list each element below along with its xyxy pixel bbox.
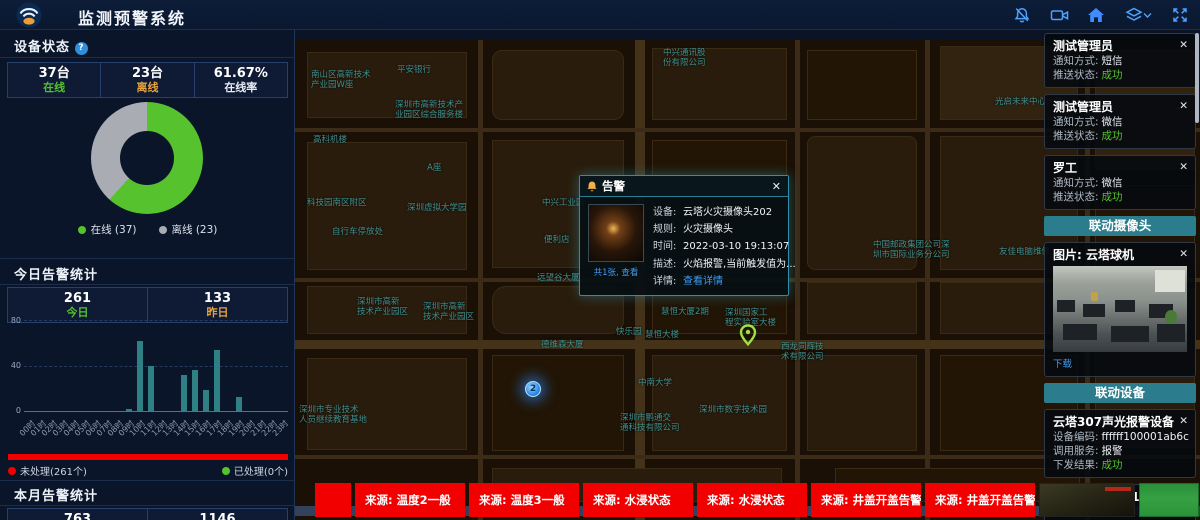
donut-legend: 在线 (37) 离线 (23) [0,222,295,237]
map-block [807,355,917,451]
ticker-alarm-item[interactable]: 来源: 井盖开盖告警 [811,483,921,517]
map-place-label: 慧恒大楼 [645,330,679,340]
alarm-snapshot-image[interactable] [588,204,644,262]
map-place-label: 中国邮政集团公司深 圳市国际业务分公司 [873,240,950,260]
legend-item-offline[interactable]: 离线 (23) [159,222,218,237]
right-notification-panel: ✕ 测试管理员 通知方式:短信 推送状态:成功 ✕ 测试管理员 通知方式:微信 … [1044,30,1196,520]
map-place-label: 科技园南区附区 [307,198,367,208]
unprocessed-label: 未处理(261个) [8,463,87,478]
camera-snapshot-card: ✕ 图片: 云塔球机 下载 [1044,242,1196,377]
view-detail-link[interactable]: 查看详情 [683,273,723,290]
help-icon[interactable]: ? [75,42,88,55]
close-icon[interactable]: ✕ [1179,248,1188,260]
bar-09时 [126,409,132,411]
bar-14时 [181,375,187,411]
notification-card: ✕ 测试管理员 通知方式:微信 推送状态:成功 [1044,94,1196,149]
device-status-donut-chart [91,102,203,214]
device-status-stats: 37台 在线 23台 离线 61.67% 在线率 [7,62,288,98]
close-icon[interactable]: ✕ [1179,39,1188,51]
bar-15时 [192,370,198,411]
today-alarm-bar-chart: 80 40 0 00时01时02时03时04时05时06时07时08时09时10… [8,318,290,470]
gridline [24,366,288,367]
alarm-bell-icon [587,181,597,192]
map-place-label: 深圳市高新 技术产业园区 [423,302,474,322]
map-cluster-marker[interactable]: 2 [525,381,541,397]
map-location-pin-icon[interactable] [739,324,757,350]
map-place-label: 深圳市数字技术园 [699,405,767,415]
notification-card: ✕ 测试管理员 通知方式:短信 推送状态:成功 [1044,33,1196,88]
notification-card: ✕ 罗工 通知方式:微信 推送状态:成功 [1044,155,1196,210]
alarm-photo-links[interactable]: 共1张, 查看 [588,266,644,278]
today-alarm-title: 今日告警统计 [14,264,98,283]
ticker-alarm-item[interactable]: 来源: 水浸状态 [697,483,807,517]
processed-label: 已处理(0个) [222,463,288,478]
legend-dot [159,226,167,234]
alarm-field-detail: 详情: 查看详情 [653,273,796,290]
green-dot-icon [222,467,230,475]
divider [0,480,295,481]
month-alarm-stats: 763 1146 [7,508,288,520]
camera-snapshot-image[interactable] [1053,266,1187,352]
page-title: 监测预警系统 [78,5,186,29]
divider [0,57,295,58]
map-block [807,282,917,334]
map-block [652,355,787,451]
home-icon[interactable] [1086,5,1106,25]
map-place-label: 慧恒大厦2期 [661,307,709,317]
map-place-label: 高科机楼 [313,135,347,145]
ticker-alarm-item[interactable]: 来源: 水浸状态 [583,483,693,517]
fullscreen-icon[interactable] [1170,5,1190,25]
map-place-label: 南山区高新技术 产业园W座 [311,70,371,90]
right-panel-scrollbar[interactable] [1195,33,1199,123]
map-place-label: 深圳市鹏通交 通科技有限公司 [620,413,680,433]
layers-icon[interactable] [1123,5,1153,25]
stat-offline: 23台 离线 [100,63,193,97]
ticker-alarm-item[interactable]: 来源: 温度2一般 [355,483,465,517]
video-camera-icon[interactable] [1049,5,1069,25]
alarm-field-rule: 规则: 火灾摄像头 [653,221,796,238]
alarm-popup-title: 告警 [602,178,767,194]
bar-10时 [137,341,143,411]
linked-device-card: ✕ 云塔307声光报警设备 设备编码:ffffff100001ab6c 调用服务… [1044,409,1196,478]
map-place-label: 平安银行 [397,65,431,75]
divider [0,258,295,259]
ticker-item-partial[interactable] [315,483,351,517]
bar-19时 [236,397,242,411]
red-dot-icon [8,467,16,475]
stat-month-previous: 1146 [147,509,287,520]
bar-17时 [214,350,220,411]
divider [0,505,295,506]
alarm-popup-close-icon[interactable]: ✕ [772,180,781,193]
map-block [807,50,917,120]
progress-labels: 未处理(261个) 已处理(0个) [8,463,288,478]
bar-plot-area [24,320,288,412]
stat-month-current: 763 [8,509,147,520]
map-block [492,50,624,120]
map-place-label: 中兴通讯股 份有限公司 [663,48,706,68]
stat-online-rate: 61.67% 在线率 [194,63,287,97]
map-place-label: 深圳虚拟大学园 [407,203,467,213]
map-place-label: 德维森大厦 [541,340,584,350]
unprocessed-progress-bar [8,454,288,460]
stat-today: 261 今日 [8,288,147,322]
close-icon[interactable]: ✕ [1179,161,1188,173]
chevron-down-icon [1143,12,1152,19]
map-place-label: 深圳市高新技术产 业园区综合服务楼 [395,100,463,120]
linked-devices-header: 联动设备 [1044,383,1196,403]
map-block [492,355,624,451]
alarm-popup: 告警 ✕ 共1张, 查看 设备: 云塔火灾摄像头202 规则: 火灾摄像头 [579,175,789,296]
alarm-field-description: 描述: 火焰报警,当前触发值为... [653,256,796,273]
bar-11时 [148,366,154,411]
download-link[interactable]: 下载 [1053,356,1072,370]
left-stats-panel: 设备状态? 37台 在线 23台 离线 61.67% 在线率 在线 (37) [0,30,295,520]
map-place-label: 便利店 [544,235,570,245]
map-place-label: 深圳市专业技术 人员继续教育基地 [299,405,367,425]
alarm-field-time: 时间: 2022-03-10 19:13:07 [653,238,796,255]
alarm-field-device: 设备: 云塔火灾摄像头202 [653,204,796,221]
app-logo-icon [16,2,42,32]
monitoring-dashboard: 中兴通讯股 份有限公司平安银行南山区高新技术 产业园W座深圳市高新技术产 业园区… [0,0,1200,520]
map-place-label: 远望谷大厦 [537,273,580,283]
map-place-label: 中南大学 [638,378,672,388]
map-place-label: 西龙同辉技 术有限公司 [781,342,824,362]
stat-yesterday: 133 昨日 [147,288,287,322]
alarm-ticker: 来源: 温度2一般来源: 温度3一般来源: 水浸状态来源: 水浸状态来源: 井盖… [315,483,1199,517]
bell-off-icon[interactable] [1012,5,1032,25]
map-place-label: 友佳电脑维修 [999,247,1050,257]
legend-dot [78,226,86,234]
device-status-title: 设备状态? [14,36,88,55]
ticker-snapshot-image[interactable] [1039,483,1135,517]
alarm-popup-header: 告警 ✕ [580,176,788,197]
stat-online: 37台 在线 [8,63,100,97]
map-place-label: 深圳市高新 技术产业园区 [357,297,408,317]
map-place-label: A座 [427,163,441,173]
top-bar: 监测预警系统 [0,0,1200,30]
ticker-alarm-item[interactable]: 来源: 井盖开盖告警 [925,483,1035,517]
close-icon[interactable]: ✕ [1179,415,1188,427]
ticker-alarm-item[interactable]: 来源: 温度3一般 [469,483,579,517]
map-block [307,358,467,450]
linked-camera-header: 联动摄像头 [1044,216,1196,236]
divider [0,284,295,285]
close-icon[interactable]: ✕ [1179,100,1188,112]
map-place-label: 快乐园 [616,327,642,337]
gridline [24,320,288,321]
ticker-video-image[interactable] [1139,483,1199,517]
map-place-label: 自行车停放处 [332,227,383,237]
legend-item-online[interactable]: 在线 (37) [78,222,137,237]
bar-16时 [203,390,209,411]
month-alarm-title: 本月告警统计 [14,485,98,504]
